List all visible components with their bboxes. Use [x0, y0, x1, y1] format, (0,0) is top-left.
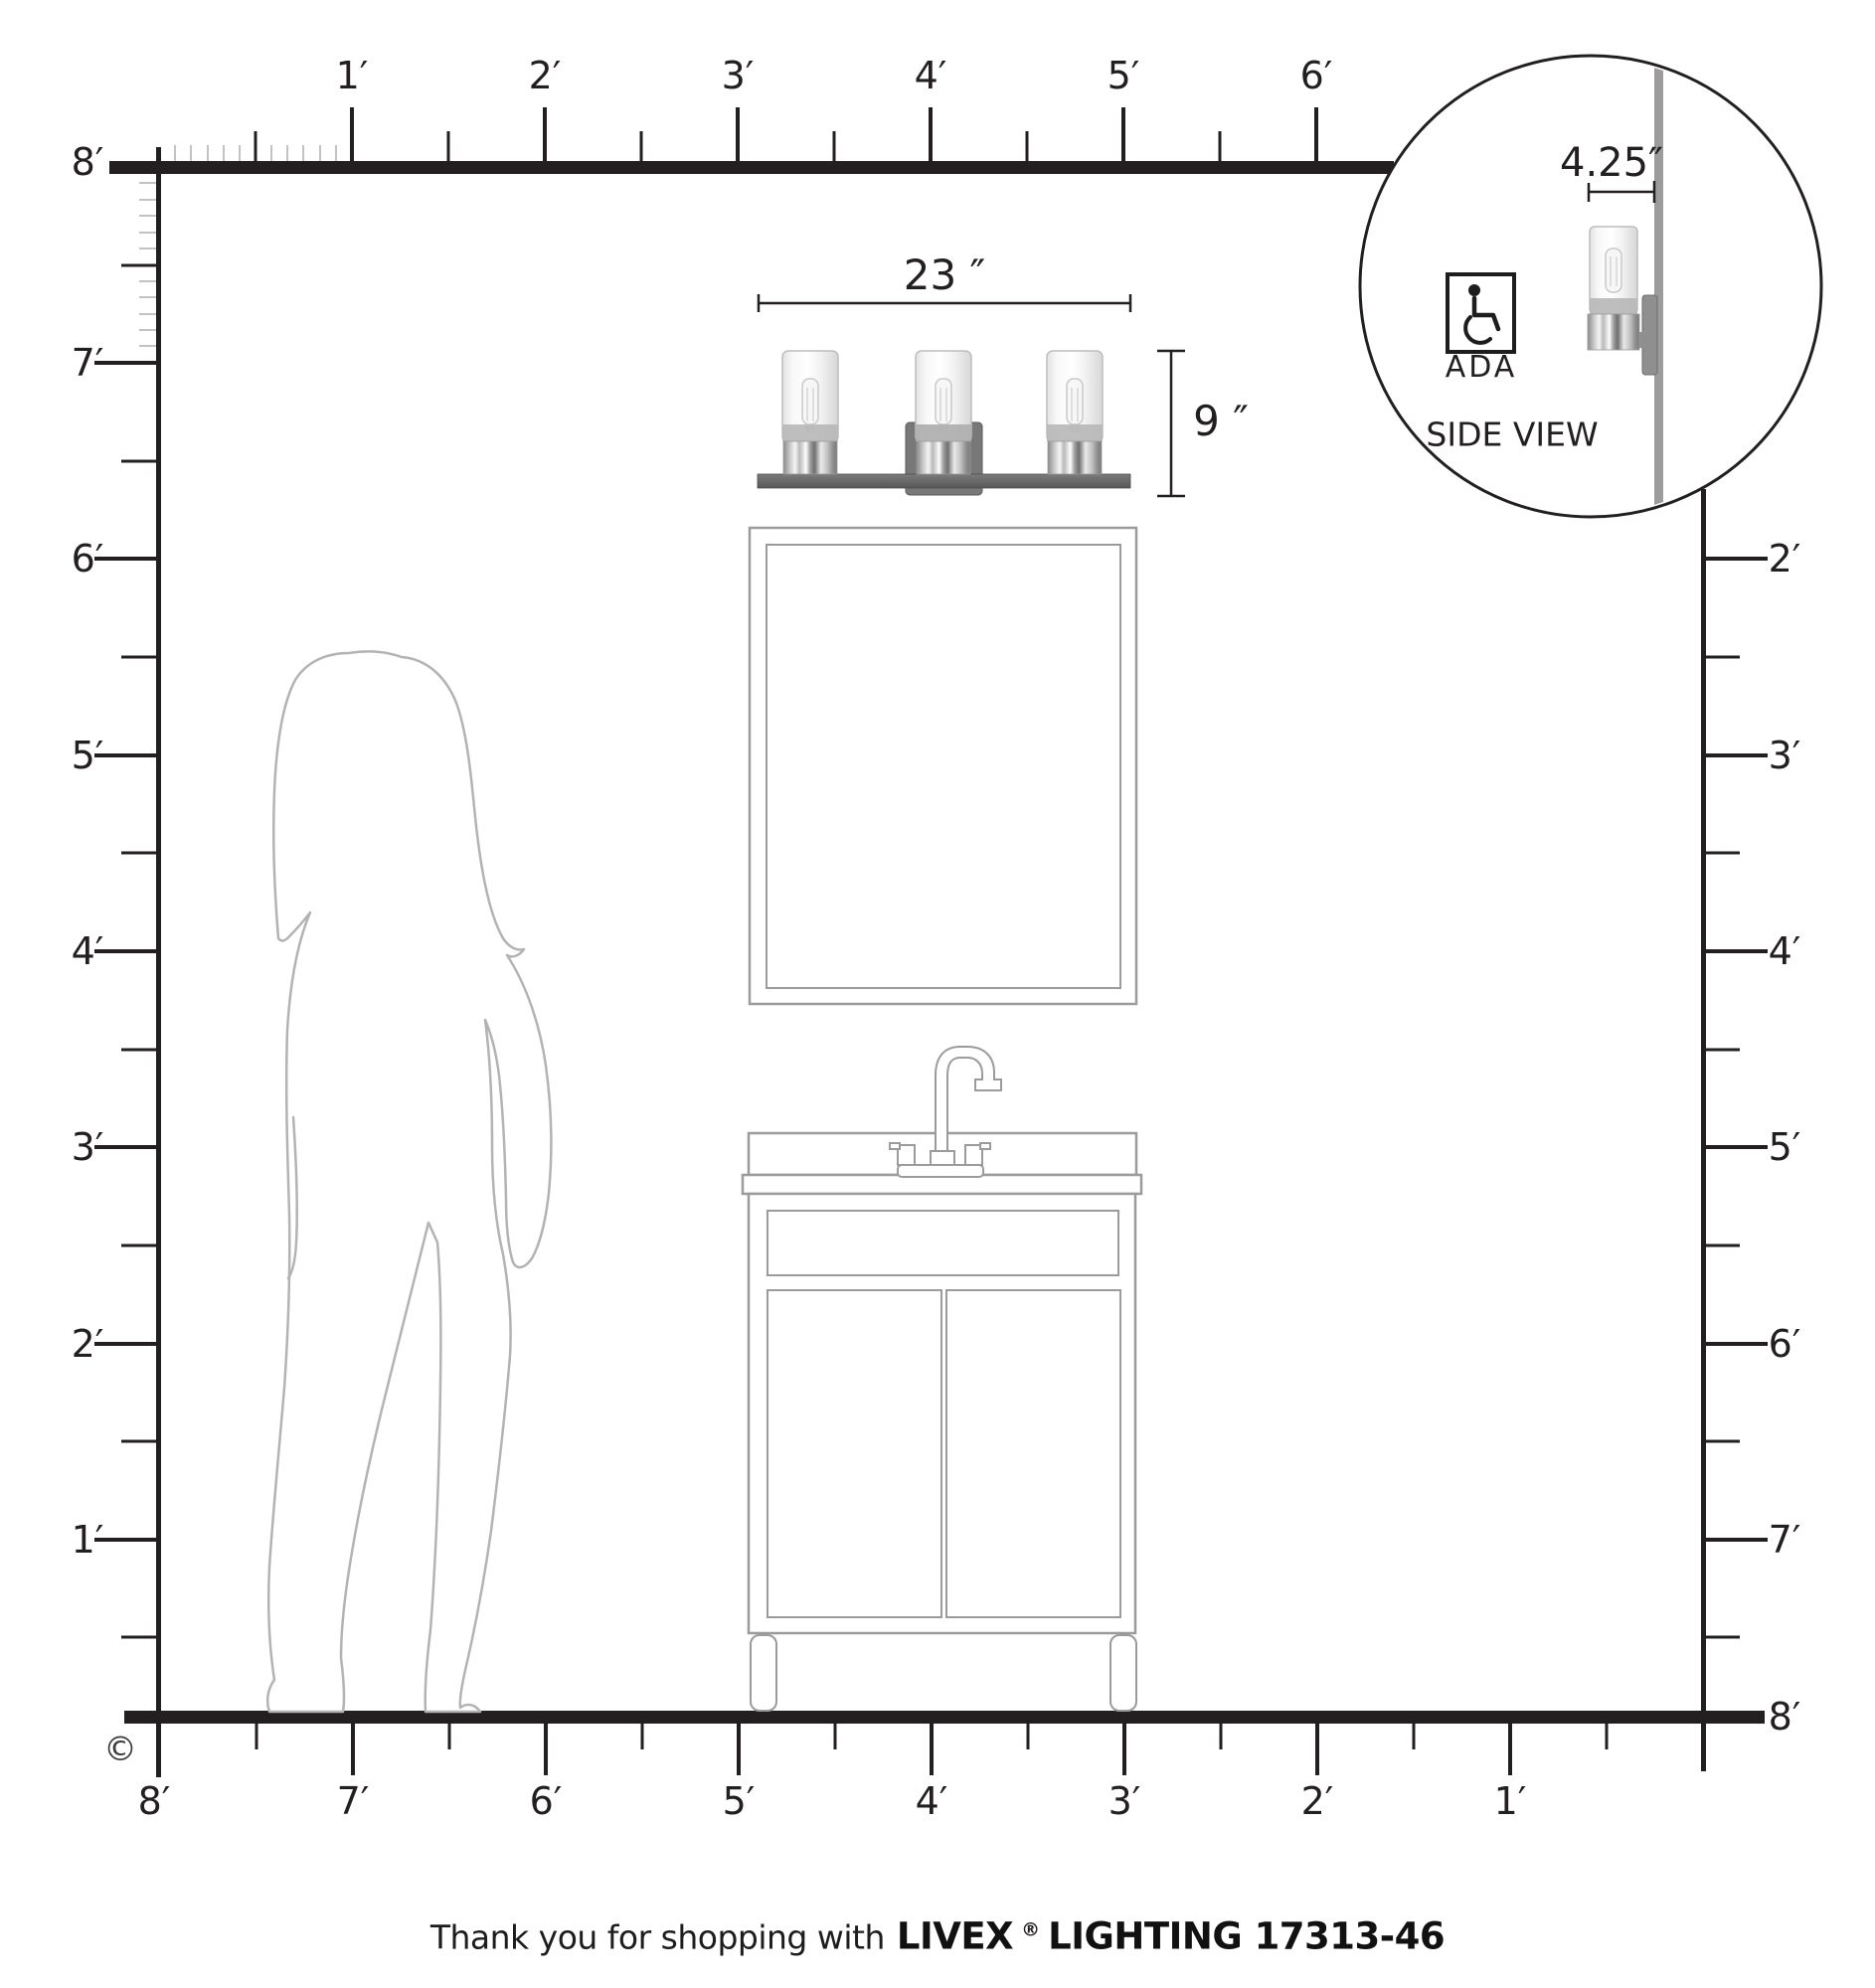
ruler-label-left-6ft: 6′	[72, 540, 104, 578]
ruler-label-bottom-7ft: 7′	[337, 1782, 370, 1820]
ruler-label-left-2ft: 2′	[72, 1325, 104, 1363]
ruler-label-bottom-8ft: 8′	[138, 1782, 171, 1820]
ada-label: ADA	[1446, 353, 1518, 383]
left-ruler	[94, 147, 161, 1777]
height-dimension-line	[1157, 351, 1185, 496]
ruler-label-bottom-6ft: 6′	[530, 1782, 563, 1820]
ruler-label-left-7ft: 7′	[72, 344, 104, 382]
ruler-label-left-4ft: 4′	[72, 932, 104, 970]
ruler-label-top-2ft: 2′	[529, 57, 562, 94]
fixture-width-label: 23 ″	[904, 254, 985, 296]
ruler-label-left-1ft: 1′	[72, 1521, 104, 1559]
ruler-label-top-3ft: 3′	[722, 57, 755, 94]
fixture-bar	[758, 474, 1130, 488]
footer-thanks: Thank you for shopping with	[430, 1918, 885, 1957]
footer: Thank you for shopping with LIVEX ® LIGH…	[430, 1915, 1445, 1958]
ruler-label-left-3ft: 3′	[72, 1128, 104, 1166]
mirror	[750, 528, 1136, 1004]
ruler-label-top-5ft: 5′	[1108, 57, 1140, 94]
vanity-light-fixture	[758, 351, 1130, 495]
ruler-label-top-1ft: 1′	[336, 57, 369, 94]
ruler-label-bottom-4ft: 4′	[916, 1782, 948, 1820]
side-view-inset-circle	[1360, 50, 1821, 527]
footer-registered-mark: ®	[1021, 1919, 1040, 1941]
lamp-1	[782, 351, 838, 474]
ruler-label-top-6ft: 6′	[1300, 57, 1333, 94]
ruler-label-right-5ft: 5′	[1769, 1128, 1801, 1166]
lamp-3	[1047, 351, 1103, 474]
ruler-label-right-2ft: 2′	[1769, 540, 1801, 578]
fixture-height-label: 9 ″	[1193, 401, 1249, 442]
person-silhouette	[267, 651, 551, 1712]
fixture-depth-label: 4.25″	[1560, 143, 1663, 183]
ruler-label-left-8ft: 8′	[72, 143, 104, 181]
copyright-symbol: ©	[103, 1733, 137, 1766]
ruler-label-bottom-3ft: 3′	[1108, 1782, 1141, 1820]
ruler-label-left-5ft: 5′	[72, 737, 104, 774]
wall-line	[1654, 50, 1663, 527]
right-ruler	[1701, 489, 1768, 1771]
lamp-2	[916, 351, 971, 474]
ruler-label-right-6ft: 6′	[1769, 1325, 1801, 1363]
ruler-label-right-4ft: 4′	[1769, 932, 1801, 970]
ruler-label-bottom-2ft: 2′	[1301, 1782, 1334, 1820]
bottom-ruler	[124, 1711, 1765, 1775]
ruler-label-top-4ft: 4′	[915, 57, 947, 94]
top-ruler	[109, 107, 1394, 174]
ruler-label-right-3ft: 3′	[1769, 737, 1801, 774]
footer-brand: LIVEX	[897, 1915, 1013, 1958]
side-view-label: SIDE VIEW	[1426, 418, 1598, 451]
vanity-cabinet	[743, 1133, 1141, 1711]
scale-diagram-page: 1′ 2′ 3′ 4′ 5′ 6′ 8′ 7′ 6′ 5′ 4′ 3′ 2′ 1…	[0, 0, 1875, 1988]
ruler-label-bottom-1ft: 1′	[1494, 1782, 1527, 1820]
footer-product: LIGHTING 17313-46	[1048, 1915, 1445, 1958]
ruler-label-right-7ft: 7′	[1769, 1521, 1801, 1559]
ruler-label-right-8ft: 8′	[1769, 1698, 1801, 1736]
ruler-label-bottom-5ft: 5′	[723, 1782, 756, 1820]
